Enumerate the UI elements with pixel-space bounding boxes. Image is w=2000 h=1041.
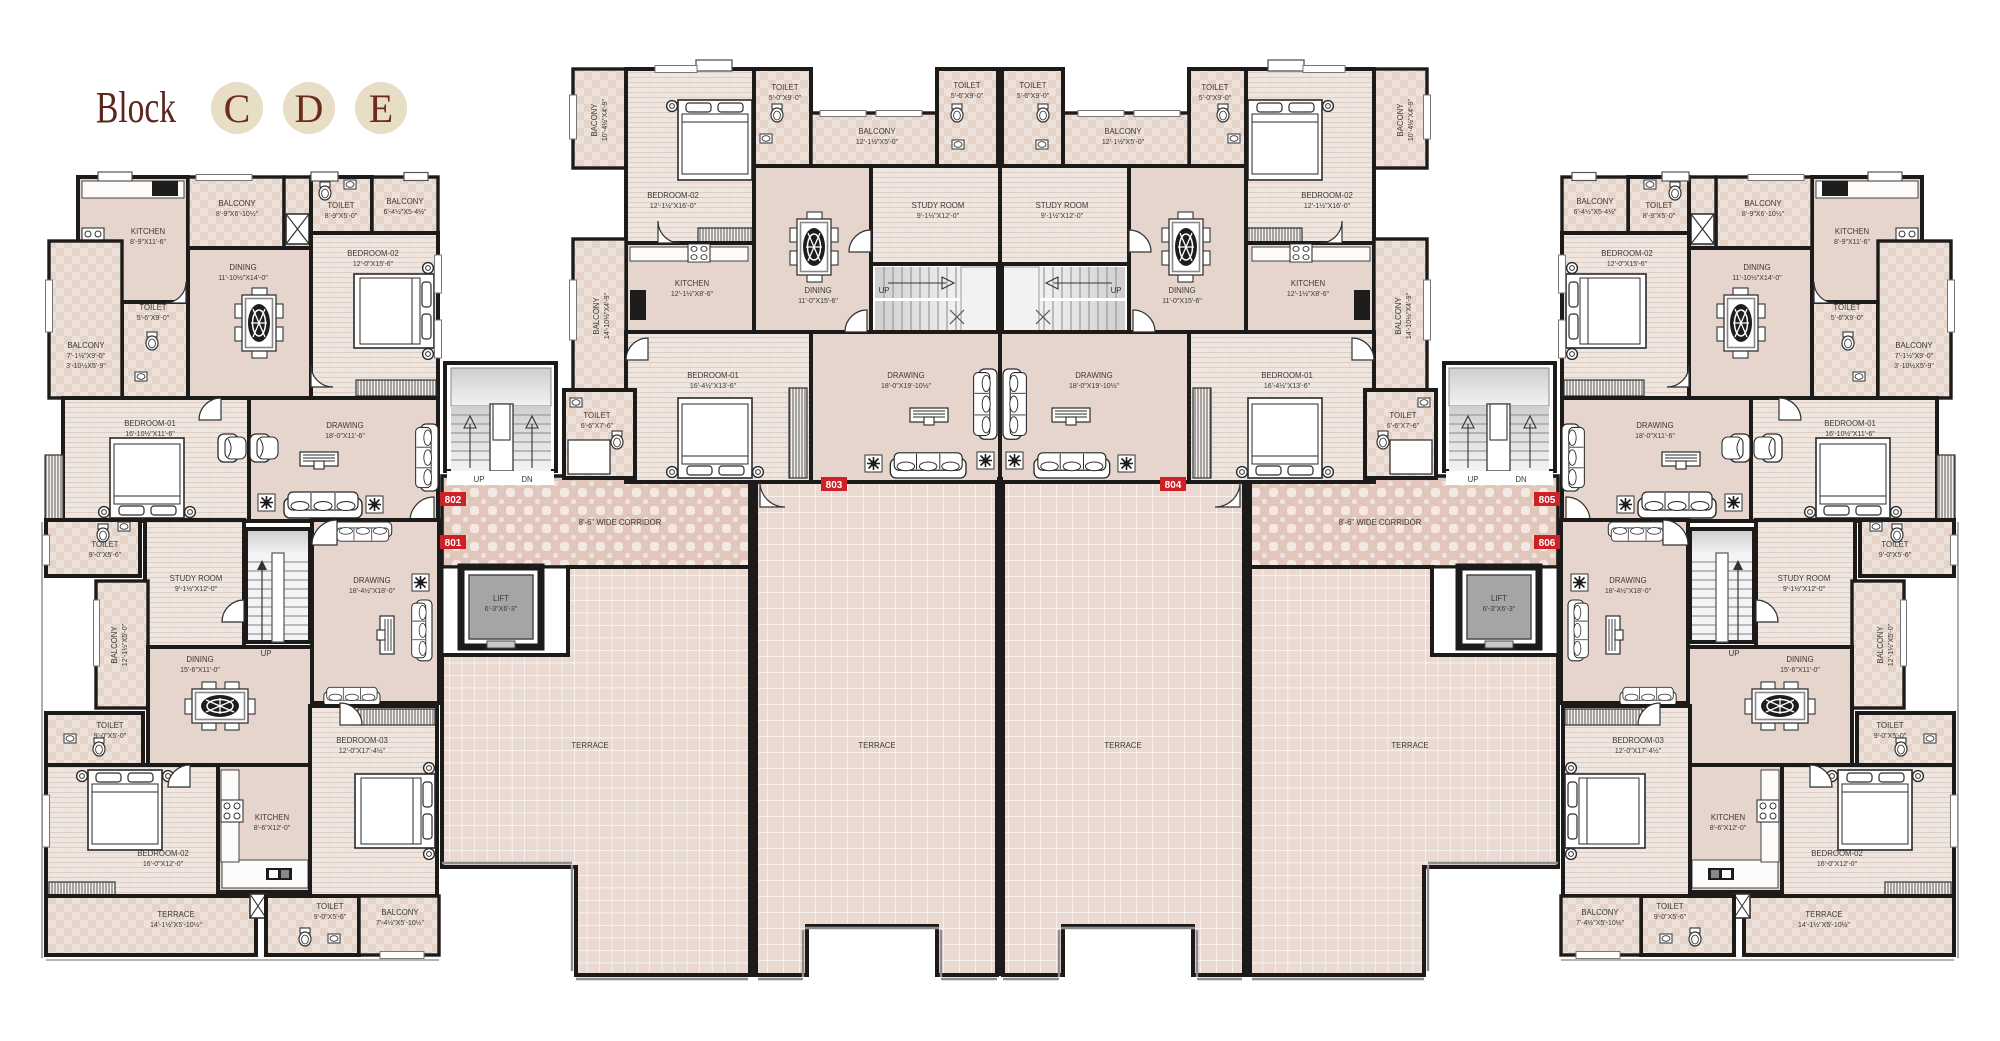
svg-text:806: 806 [1539, 538, 1556, 549]
svg-text:TOILET: TOILET [1389, 411, 1416, 420]
svg-text:STUDY ROOM: STUDY ROOM [170, 574, 223, 583]
svg-text:TOILET: TOILET [1876, 721, 1903, 730]
svg-text:805: 805 [1539, 495, 1556, 506]
svg-text:5'-0"X9'-0": 5'-0"X9'-0" [1199, 95, 1232, 102]
svg-text:DRAWING: DRAWING [1609, 576, 1646, 585]
svg-text:9'-0"X5'-6": 9'-0"X5'-6" [1654, 914, 1687, 921]
svg-text:TERRACE: TERRACE [858, 741, 895, 750]
svg-text:5'-6"X9'-0": 5'-6"X9'-0" [951, 93, 984, 100]
svg-text:DINING: DINING [1168, 286, 1195, 295]
svg-text:15'-6"X11'-0": 15'-6"X11'-0" [1780, 667, 1820, 674]
svg-text:12'-0"X15'-6": 12'-0"X15'-6" [353, 261, 394, 268]
svg-text:DRAWING: DRAWING [1075, 371, 1112, 380]
svg-text:DINING: DINING [804, 286, 831, 295]
svg-text:BEDROOM-02: BEDROOM-02 [1811, 849, 1863, 858]
svg-text:12'-1½"X8'-6": 12'-1½"X8'-6" [671, 290, 714, 298]
svg-text:BALCONY: BALCONY [381, 908, 419, 917]
svg-text:BEDROOM-01: BEDROOM-01 [124, 419, 176, 428]
svg-text:12'-1½"X16'-0": 12'-1½"X16'-0" [1304, 202, 1351, 210]
svg-text:18'-4½"X18'-0": 18'-4½"X18'-0" [349, 587, 396, 595]
svg-text:TOILET: TOILET [91, 540, 118, 549]
svg-text:LIFT: LIFT [1491, 594, 1507, 603]
svg-text:16'-0"X12'-0": 16'-0"X12'-0" [1817, 861, 1858, 868]
svg-text:BALCONY: BALCONY [1576, 197, 1614, 206]
svg-text:8'-9"X5'-0": 8'-9"X5'-0" [1643, 213, 1676, 220]
svg-text:18'-4½"X18'-0": 18'-4½"X18'-0" [1605, 587, 1652, 595]
svg-text:14'-1½"X5'-10½": 14'-1½"X5'-10½" [150, 921, 203, 929]
svg-text:8'-9"X11'-6": 8'-9"X11'-6" [130, 239, 166, 246]
svg-text:BEDROOM-02: BEDROOM-02 [347, 249, 399, 258]
svg-text:DRAWING: DRAWING [887, 371, 924, 380]
svg-text:7'-1½"X9'-0": 7'-1½"X9'-0" [1895, 352, 1934, 360]
svg-text:18'-0"X19'-10½": 18'-0"X19'-10½" [1069, 382, 1120, 390]
svg-text:KITCHEN: KITCHEN [1835, 227, 1869, 236]
svg-text:16'-0"X12'-0": 16'-0"X12'-0" [143, 861, 184, 868]
svg-text:15'-6"X11'-0": 15'-6"X11'-0" [180, 667, 220, 674]
svg-text:6'-3"X6'-3": 6'-3"X6'-3" [485, 606, 518, 613]
svg-text:18'-0"X11'-6": 18'-0"X11'-6" [325, 433, 365, 440]
svg-text:TOILET: TOILET [583, 411, 610, 420]
svg-text:BEDROOM-03: BEDROOM-03 [336, 736, 388, 745]
svg-text:BALCONY: BALCONY [110, 626, 119, 664]
svg-text:DN: DN [521, 475, 532, 484]
svg-text:9'-0"X5'-6": 9'-0"X5'-6" [314, 914, 347, 921]
svg-text:TERRACE: TERRACE [1805, 910, 1842, 919]
svg-text:TOILET: TOILET [953, 81, 980, 90]
svg-text:C: C [224, 86, 251, 131]
svg-text:TERRACE: TERRACE [571, 741, 608, 750]
svg-text:BEDROOM-01: BEDROOM-01 [1824, 419, 1876, 428]
svg-text:6'-6"X7'-6": 6'-6"X7'-6" [1387, 423, 1420, 430]
svg-text:10'-4½"X4'-9": 10'-4½"X4'-9" [601, 98, 609, 141]
svg-text:11'-10½"X14'-0": 11'-10½"X14'-0" [218, 274, 268, 282]
svg-text:TOILET: TOILET [1656, 902, 1683, 911]
svg-text:803: 803 [826, 480, 843, 491]
svg-text:7'-1½"X9'-0": 7'-1½"X9'-0" [67, 352, 106, 360]
svg-text:5'-6"X9'-0": 5'-6"X9'-0" [137, 315, 170, 322]
svg-text:BACONY: BACONY [590, 103, 599, 137]
svg-text:TOILET: TOILET [1881, 540, 1908, 549]
svg-text:Block: Block [96, 83, 176, 132]
svg-text:14'-10½"X4'-9": 14'-10½"X4'-9" [1405, 292, 1413, 339]
svg-text:UP: UP [1111, 286, 1122, 295]
svg-text:6'-4½"X5-4½": 6'-4½"X5-4½" [384, 208, 427, 216]
svg-text:UP: UP [1729, 649, 1740, 658]
svg-text:12'-1½"X8'-6": 12'-1½"X8'-6" [1287, 290, 1330, 298]
svg-text:9'-1½"X12'-0": 9'-1½"X12'-0" [1783, 585, 1826, 593]
svg-text:TOILET: TOILET [1645, 201, 1672, 210]
svg-text:TOILET: TOILET [771, 83, 798, 92]
svg-text:BALCONY: BALCONY [218, 199, 256, 208]
svg-text:DN: DN [1515, 475, 1526, 484]
svg-text:BALCONY: BALCONY [858, 127, 896, 136]
svg-text:BACONY: BACONY [1396, 103, 1405, 137]
svg-text:TOILET: TOILET [96, 721, 123, 730]
svg-text:12'-1½"X5'-0": 12'-1½"X5'-0" [1102, 138, 1145, 146]
svg-text:9'-1½"X12'-0": 9'-1½"X12'-0" [1041, 212, 1084, 220]
svg-text:8'-6"X12'-0": 8'-6"X12'-0" [1710, 825, 1747, 832]
svg-text:BEDROOM-01: BEDROOM-01 [1261, 371, 1313, 380]
svg-text:UP: UP [474, 475, 485, 484]
svg-text:TERRACE: TERRACE [157, 910, 194, 919]
svg-text:BALCONY: BALCONY [1581, 908, 1619, 917]
svg-text:UP: UP [879, 286, 890, 295]
svg-text:KITCHEN: KITCHEN [675, 279, 709, 288]
svg-text:DRAWING: DRAWING [1636, 421, 1673, 430]
svg-text:TERRACE: TERRACE [1391, 741, 1428, 750]
svg-text:8'-9"X11'-6": 8'-9"X11'-6" [1834, 239, 1870, 246]
svg-text:D: D [295, 86, 324, 131]
svg-text:11'-0"X15'-6": 11'-0"X15'-6" [1162, 298, 1202, 305]
svg-text:7'-4½"X5'-10½": 7'-4½"X5'-10½" [376, 919, 425, 927]
svg-text:16'-4½"X13'-6": 16'-4½"X13'-6" [690, 382, 737, 390]
svg-text:BALCONY: BALCONY [1876, 626, 1885, 664]
svg-text:5'-6"X9'-0": 5'-6"X9'-0" [1831, 315, 1864, 322]
svg-text:12'-0"X17'-4½": 12'-0"X17'-4½" [1615, 747, 1662, 755]
svg-text:12'-0"X17'-4½": 12'-0"X17'-4½" [339, 747, 386, 755]
svg-text:804: 804 [1165, 480, 1182, 491]
svg-text:TOILET: TOILET [316, 902, 343, 911]
svg-text:6'-6"X7'-6": 6'-6"X7'-6" [581, 423, 614, 430]
svg-text:KITCHEN: KITCHEN [131, 227, 165, 236]
svg-text:12'-0"X15'-6": 12'-0"X15'-6" [1607, 261, 1648, 268]
svg-text:BALCONY: BALCONY [1394, 297, 1403, 335]
svg-text:9'-1½"X12'-0": 9'-1½"X12'-0" [917, 212, 960, 220]
svg-text:18'-0"X19'-10½": 18'-0"X19'-10½" [881, 382, 932, 390]
svg-text:DINING: DINING [1743, 263, 1770, 272]
svg-text:UP: UP [261, 649, 272, 658]
svg-text:DRAWING: DRAWING [326, 421, 363, 430]
svg-text:8'-6" WIDE CORRIDOR: 8'-6" WIDE CORRIDOR [579, 518, 662, 527]
svg-text:3'-10½X5'-9": 3'-10½X5'-9" [66, 362, 106, 370]
svg-text:UP: UP [1468, 475, 1479, 484]
svg-text:14'-10½"X4'-9": 14'-10½"X4'-9" [603, 292, 611, 339]
svg-text:KITCHEN: KITCHEN [1291, 279, 1325, 288]
svg-text:DINING: DINING [229, 263, 256, 272]
svg-text:8'-9"X6'-10½": 8'-9"X6'-10½" [216, 210, 259, 218]
svg-text:STUDY ROOM: STUDY ROOM [1778, 574, 1831, 583]
svg-text:12'-1½"X5'-0": 12'-1½"X5'-0" [1887, 623, 1895, 666]
svg-text:BEDROOM-02: BEDROOM-02 [1601, 249, 1653, 258]
svg-text:6'-4½"X5-4½": 6'-4½"X5-4½" [1574, 208, 1617, 216]
svg-text:9'-0"X5'-0": 9'-0"X5'-0" [1874, 733, 1907, 740]
svg-text:11'-0"X15'-6": 11'-0"X15'-6" [798, 298, 838, 305]
svg-text:DINING: DINING [186, 655, 213, 664]
svg-text:9'-0"X5'-6": 9'-0"X5'-6" [1879, 552, 1912, 559]
svg-text:12'-1½"X5'-0": 12'-1½"X5'-0" [121, 623, 129, 666]
svg-text:TOILET: TOILET [1833, 303, 1860, 312]
svg-text:BALCONY: BALCONY [1744, 199, 1782, 208]
svg-text:7'-4½"X5'-10½": 7'-4½"X5'-10½" [1576, 919, 1625, 927]
svg-text:801: 801 [445, 538, 462, 549]
svg-text:8'-9"X5'-0": 8'-9"X5'-0" [325, 213, 358, 220]
svg-text:LIFT: LIFT [493, 594, 509, 603]
svg-text:8'-6"X12'-0": 8'-6"X12'-0" [254, 825, 291, 832]
svg-text:TOILET: TOILET [1201, 83, 1228, 92]
svg-text:18'-0"X11'-6": 18'-0"X11'-6" [1635, 433, 1675, 440]
svg-text:10'-4½"X4'-9": 10'-4½"X4'-9" [1407, 98, 1415, 141]
svg-text:5'-6"X9'-0": 5'-6"X9'-0" [1017, 93, 1050, 100]
svg-text:6'-3"X6'-3": 6'-3"X6'-3" [1483, 606, 1516, 613]
svg-text:9'-1½"X12'-0": 9'-1½"X12'-0" [175, 585, 218, 593]
svg-text:802: 802 [445, 495, 462, 506]
svg-text:DINING: DINING [1786, 655, 1813, 664]
svg-text:STUDY ROOM: STUDY ROOM [912, 201, 965, 210]
svg-text:3'-10½X5'-9": 3'-10½X5'-9" [1894, 362, 1934, 370]
svg-text:BEDROOM-02: BEDROOM-02 [1301, 191, 1353, 200]
svg-text:16'-10½"X11'-6": 16'-10½"X11'-6" [1825, 430, 1875, 438]
svg-text:BALCONY: BALCONY [1895, 341, 1933, 350]
svg-text:BEDROOM-01: BEDROOM-01 [687, 371, 739, 380]
svg-text:11'-10½"X14'-0": 11'-10½"X14'-0" [1732, 274, 1782, 282]
svg-text:BALCONY: BALCONY [592, 297, 601, 335]
svg-text:TOILET: TOILET [139, 303, 166, 312]
svg-text:5'-0"X9'-0": 5'-0"X9'-0" [769, 95, 802, 102]
svg-text:16'-4½"X13'-6": 16'-4½"X13'-6" [1264, 382, 1311, 390]
svg-text:TOILET: TOILET [1019, 81, 1046, 90]
svg-text:12'-1½"X5'-0": 12'-1½"X5'-0" [856, 138, 899, 146]
svg-text:9'-0"X5'-0": 9'-0"X5'-0" [94, 733, 127, 740]
svg-text:KITCHEN: KITCHEN [255, 813, 289, 822]
svg-text:12'-1½"X16'-0": 12'-1½"X16'-0" [650, 202, 697, 210]
svg-text:14'-1½"X5'-10½": 14'-1½"X5'-10½" [1798, 921, 1851, 929]
svg-text:BALCONY: BALCONY [386, 197, 424, 206]
svg-text:BEDROOM-02: BEDROOM-02 [647, 191, 699, 200]
svg-text:BEDROOM-03: BEDROOM-03 [1612, 736, 1664, 745]
svg-text:STUDY ROOM: STUDY ROOM [1036, 201, 1089, 210]
svg-text:TERRACE: TERRACE [1104, 741, 1141, 750]
svg-text:9'-0"X5'-6": 9'-0"X5'-6" [89, 552, 122, 559]
svg-text:BEDROOM-02: BEDROOM-02 [137, 849, 189, 858]
svg-text:DRAWING: DRAWING [353, 576, 390, 585]
svg-text:BALCONY: BALCONY [1104, 127, 1142, 136]
svg-text:8'-6" WIDE CORRIDOR: 8'-6" WIDE CORRIDOR [1339, 518, 1422, 527]
svg-text:8'-9"X6'-10½": 8'-9"X6'-10½" [1742, 210, 1785, 218]
svg-text:16'-10½"X11'-6": 16'-10½"X11'-6" [125, 430, 175, 438]
svg-text:KITCHEN: KITCHEN [1711, 813, 1745, 822]
svg-text:TOILET: TOILET [327, 201, 354, 210]
svg-text:BALCONY: BALCONY [67, 341, 105, 350]
svg-text:E: E [369, 86, 393, 131]
